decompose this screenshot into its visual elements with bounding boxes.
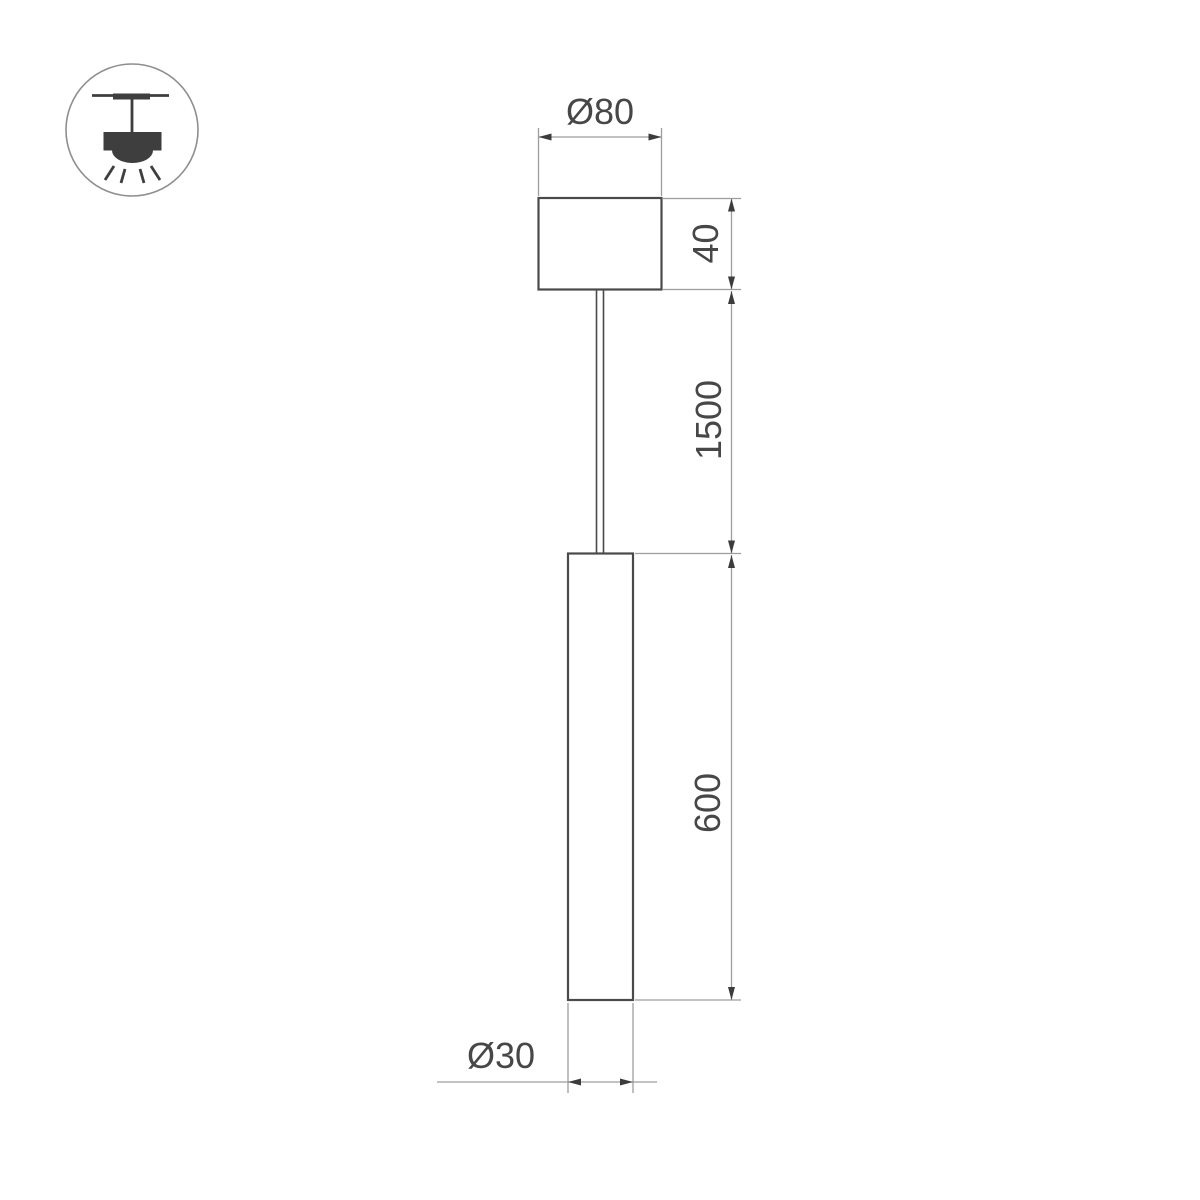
canopy-outline: [539, 198, 662, 290]
luminaire-outline: [539, 198, 662, 1000]
arrowhead-up-icon: [728, 199, 735, 212]
pendant-light-icon: [66, 64, 198, 196]
arrowhead-up-icon: [728, 291, 735, 304]
arrowhead-left-icon: [568, 1079, 581, 1086]
lamp-body: [104, 132, 162, 151]
arrowhead-down-icon: [728, 541, 735, 554]
dimension-canopy-height: 40: [663, 199, 741, 290]
dimension-label-tube-diameter: Ø30: [467, 1035, 535, 1076]
dimension-canopy-diameter: Ø80: [539, 91, 662, 196]
dimension-label-tube-length: 600: [687, 773, 728, 833]
arrowhead-right-icon: [649, 134, 662, 141]
arrowhead-up-icon: [728, 555, 735, 568]
dimension-label-canopy-height: 40: [685, 223, 726, 263]
dimension-label-suspension-length: 1500: [688, 380, 729, 460]
dimension-label-canopy-diameter: Ø80: [566, 91, 634, 132]
dimension-suspension-length: 1500: [635, 291, 741, 554]
dimension-drawing: Ø80 40 1500 600: [0, 0, 1200, 1200]
dimension-tube-diameter: Ø30: [437, 1003, 657, 1093]
arrowhead-down-icon: [728, 987, 735, 1000]
drawing-canvas: Ø80 40 1500 600: [0, 0, 1200, 1200]
canopy-plate: [113, 94, 150, 100]
arrowhead-left-icon: [539, 134, 552, 141]
arrowhead-right-icon: [620, 1079, 633, 1086]
dimension-tube-length: 600: [635, 555, 741, 1000]
tube-outline: [568, 554, 633, 1001]
arrowhead-down-icon: [728, 277, 735, 290]
